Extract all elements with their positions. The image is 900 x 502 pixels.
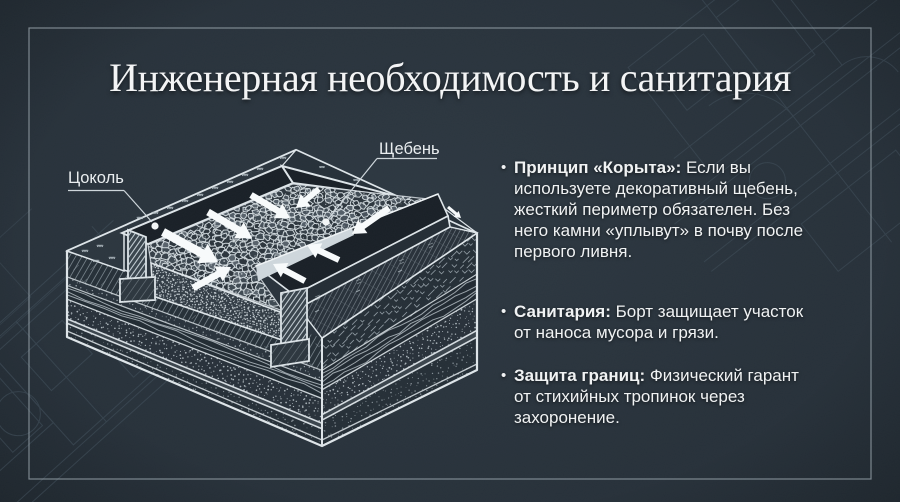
svg-text:Щебень: Щебень [379,140,440,158]
svg-text:Цоколь: Цоколь [68,169,124,187]
